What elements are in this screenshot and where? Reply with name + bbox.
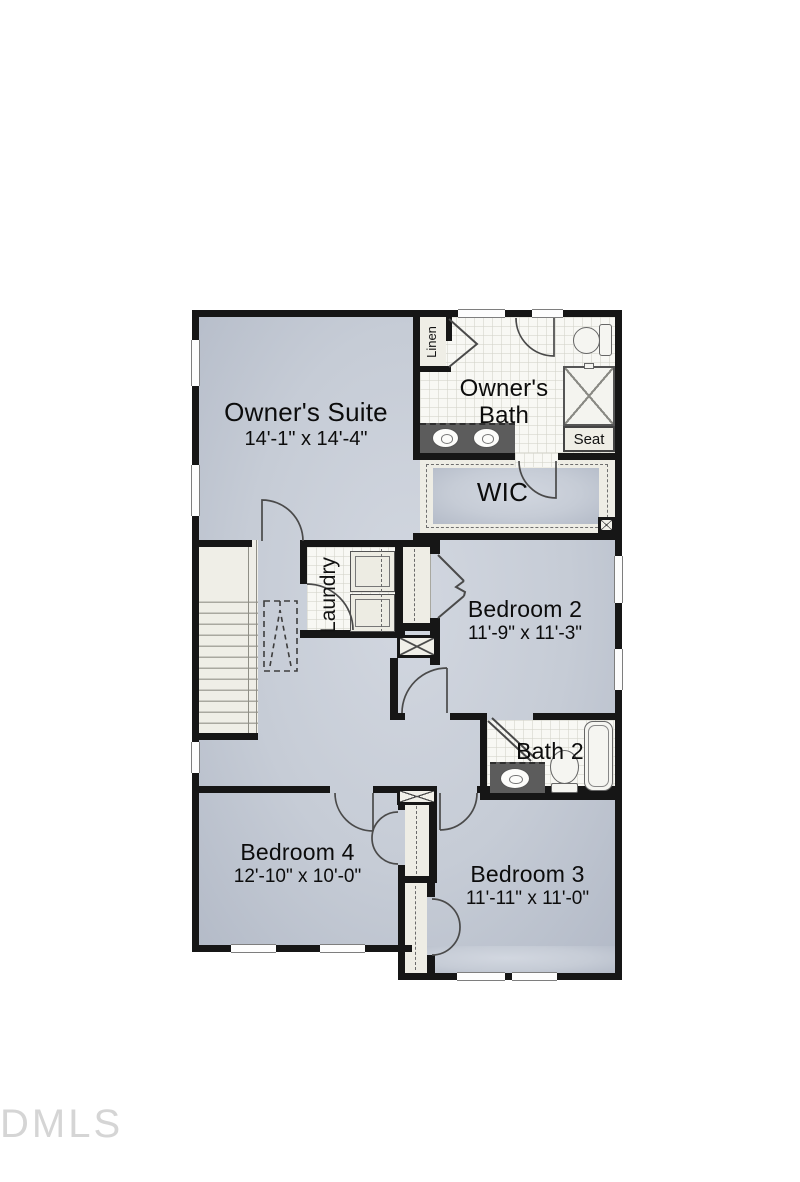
owners-suite-label: Owner's Suite 14'-1" x 14'-4" xyxy=(199,398,413,451)
wall-linen-bottom xyxy=(420,366,451,372)
bedroom2-label: Bedroom 2 11'-9" x 11'-3" xyxy=(440,597,610,646)
wall-bath-wic-a xyxy=(413,453,515,460)
wall-suite-bottom-a xyxy=(192,540,252,547)
chase-strip xyxy=(403,547,431,623)
bedroom3-closet-rod xyxy=(415,886,416,970)
window xyxy=(191,465,200,516)
wall-outer-left xyxy=(192,310,199,952)
room-name: WIC xyxy=(460,478,545,507)
window xyxy=(512,972,557,981)
bedroom4-closet-rod xyxy=(416,806,417,874)
wall-outer-bottom-bed3 xyxy=(398,973,622,980)
room-name: Bedroom 3 xyxy=(440,862,615,888)
owners-bath-label: Owner's Bath xyxy=(440,376,568,430)
toilet-tank-icon xyxy=(599,324,612,356)
window xyxy=(614,556,623,603)
vanity-sink-icon xyxy=(500,768,530,789)
window xyxy=(191,742,200,773)
dryer-icon xyxy=(350,594,395,632)
floor-plan-page: Seat Owner's Suite 1 xyxy=(0,0,800,1182)
wall-suite-bottom-b xyxy=(302,540,437,547)
wall-suite-bath xyxy=(413,310,420,460)
wall-laundry-right xyxy=(395,540,403,630)
chase-xbox-wic xyxy=(598,517,615,533)
window xyxy=(458,309,505,318)
bedroom3-closet-floor xyxy=(405,883,427,973)
wall-closet-mid xyxy=(398,876,437,883)
wall xyxy=(199,733,258,740)
wall-bath-wic-b xyxy=(558,453,622,460)
room-dims: 14'-1" x 14'-4" xyxy=(199,427,413,451)
window xyxy=(532,309,563,318)
window xyxy=(191,340,200,386)
bedroom3-label: Bedroom 3 11'-11" x 11'-0" xyxy=(440,862,615,911)
bath2-label: Bath 2 xyxy=(500,739,600,765)
room-dims: 11'-9" x 11'-3" xyxy=(440,623,610,646)
wall-corridor-a xyxy=(390,713,405,720)
wall-linen-right xyxy=(446,317,452,341)
wall-closet3-right-b xyxy=(427,955,435,973)
chase-xbox-bed4 xyxy=(397,788,437,805)
room-dims: 11'-11" x 11'-0" xyxy=(440,888,615,911)
window xyxy=(231,944,276,953)
wall-closet-left xyxy=(398,876,405,980)
shower-seat-label: Seat xyxy=(574,431,605,448)
wall-hall-bottom-a xyxy=(192,786,330,793)
shower-seat: Seat xyxy=(563,426,615,452)
toilet-icon xyxy=(573,327,600,354)
window xyxy=(320,944,365,953)
wall-outer-right xyxy=(615,310,622,980)
room-dims: 12'-10" x 10'-0" xyxy=(205,866,390,889)
wall-corridor-c xyxy=(533,713,622,720)
wic-label: WIC xyxy=(460,478,545,507)
laundry-label: Laundry xyxy=(317,549,341,641)
vanity-sink-icon xyxy=(432,428,459,448)
linen-label: Linen xyxy=(424,318,439,366)
room-name: Owner's Suite xyxy=(199,398,413,427)
watermark: DMLS xyxy=(0,1102,123,1147)
room-name: Linen xyxy=(424,326,439,358)
window xyxy=(614,649,623,690)
washer-icon xyxy=(350,551,395,592)
bedroom4-closet-floor xyxy=(405,803,429,876)
room-name: Bath xyxy=(440,403,568,430)
room-name: Owner's xyxy=(440,376,568,403)
wall-bed2-left-a xyxy=(430,540,440,554)
shower-valve-icon xyxy=(584,363,594,369)
wall-laundry-left xyxy=(300,540,307,584)
room-name: Bath 2 xyxy=(500,739,600,765)
bedroom4-label: Bedroom 4 12'-10" x 10'-0" xyxy=(205,840,390,889)
chase-xbox-hall xyxy=(397,635,437,658)
toilet-base-icon xyxy=(551,783,578,793)
wall-outer-bottom-bed4 xyxy=(192,945,412,952)
wall-closet3-right-a xyxy=(427,883,435,897)
room-name: Bedroom 2 xyxy=(440,597,610,623)
wall-wic-bottom xyxy=(413,533,622,540)
wall-bath2-bottom xyxy=(480,793,622,800)
shower-icon xyxy=(563,366,615,426)
stair-stringer xyxy=(248,540,257,733)
vanity-sink-icon xyxy=(473,428,500,448)
wall-vestibule-left xyxy=(390,658,398,720)
window xyxy=(457,972,505,981)
chase-dashed-line xyxy=(414,549,415,621)
appliance-dashed-line xyxy=(381,549,382,632)
wic-door-gap xyxy=(515,453,558,467)
room-name: Laundry xyxy=(317,557,340,633)
room-name: Bedroom 4 xyxy=(205,840,390,866)
